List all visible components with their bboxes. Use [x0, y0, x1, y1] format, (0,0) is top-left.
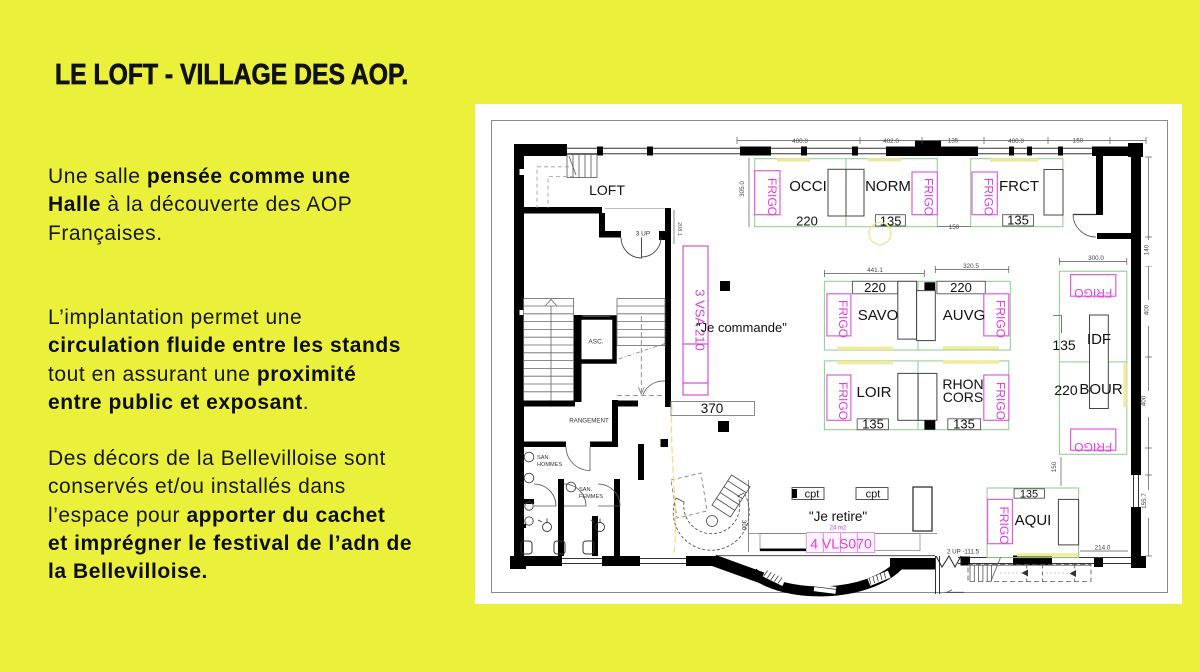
svg-text:135: 135	[953, 416, 975, 431]
svg-text:FRIGO: FRIGO	[1074, 440, 1112, 454]
svg-text:CORS: CORS	[943, 389, 983, 405]
svg-text:370: 370	[701, 401, 724, 416]
svg-text:LOFT: LOFT	[589, 182, 625, 198]
svg-text:135: 135	[1020, 488, 1038, 500]
svg-text:IDF: IDF	[1087, 331, 1111, 348]
svg-text:FRIGO: FRIGO	[993, 382, 1007, 420]
svg-text:220: 220	[864, 280, 886, 295]
svg-text:FRIGO: FRIGO	[997, 507, 1011, 545]
svg-text:441.1: 441.1	[867, 267, 883, 274]
svg-text:214.0: 214.0	[1095, 545, 1111, 552]
svg-text:AUVG: AUVG	[943, 307, 986, 324]
svg-text:HOMMES: HOMMES	[537, 462, 562, 468]
svg-text:400: 400	[1144, 304, 1151, 315]
svg-text:LOIR: LOIR	[856, 384, 891, 401]
svg-text:FRCT: FRCT	[999, 178, 1039, 195]
svg-text:SAVO: SAVO	[858, 307, 899, 324]
svg-text:220: 220	[1054, 382, 1078, 398]
svg-text:400: 400	[1141, 395, 1148, 406]
svg-text:135: 135	[1007, 213, 1029, 228]
svg-text:400.0: 400.0	[1008, 138, 1024, 145]
svg-text:"Je retire": "Je retire"	[809, 509, 868, 524]
svg-text:150: 150	[1073, 138, 1084, 145]
svg-text:BOUR: BOUR	[1079, 381, 1123, 398]
svg-text:305.0: 305.0	[739, 181, 746, 197]
svg-text:FRIGO: FRIGO	[1074, 286, 1112, 300]
svg-text:300: 300	[740, 520, 746, 531]
svg-text:cpt: cpt	[805, 489, 820, 501]
svg-text:FRIGO: FRIGO	[993, 300, 1007, 338]
svg-text:135: 135	[1052, 337, 1076, 353]
svg-text:4 VLS070: 4 VLS070	[810, 536, 872, 552]
svg-text:ASC.: ASC.	[588, 339, 603, 346]
svg-text:FRIGO: FRIGO	[836, 300, 850, 338]
svg-text:135: 135	[880, 213, 902, 228]
svg-text:SAN.: SAN.	[537, 455, 551, 461]
svg-text:208.1: 208.1	[676, 222, 682, 236]
svg-text:NORM: NORM	[865, 178, 911, 195]
svg-text:FRIGO: FRIGO	[982, 178, 996, 216]
svg-text:135: 135	[862, 416, 884, 431]
svg-text:"Je commande": "Je commande"	[696, 320, 787, 335]
svg-text:155.7: 155.7	[1141, 493, 1148, 509]
svg-text:150: 150	[949, 224, 960, 231]
svg-text:150: 150	[1051, 461, 1058, 472]
svg-text:FRIGO: FRIGO	[836, 382, 850, 420]
svg-text:FRIGO: FRIGO	[765, 178, 779, 216]
svg-text:135: 135	[948, 138, 959, 145]
svg-text:220: 220	[796, 213, 818, 228]
svg-text:24 m2: 24 m2	[830, 526, 847, 532]
svg-text:140: 140	[1144, 244, 1151, 255]
svg-text:3 UP: 3 UP	[636, 231, 650, 238]
svg-text:220: 220	[950, 280, 972, 295]
svg-text:300.0: 300.0	[1088, 255, 1104, 262]
svg-text:cpt: cpt	[866, 489, 881, 501]
svg-text:AQUI: AQUI	[1015, 512, 1052, 529]
svg-text:OCCI: OCCI	[789, 178, 827, 195]
svg-text:402.0: 402.0	[883, 138, 899, 145]
svg-text:400.0: 400.0	[792, 138, 808, 145]
svg-text:RANGEMENT: RANGEMENT	[569, 418, 609, 425]
svg-text:FRIGO: FRIGO	[922, 178, 936, 216]
svg-text:2 UP -111.5: 2 UP -111.5	[947, 549, 980, 556]
svg-text:320.5: 320.5	[963, 263, 979, 270]
